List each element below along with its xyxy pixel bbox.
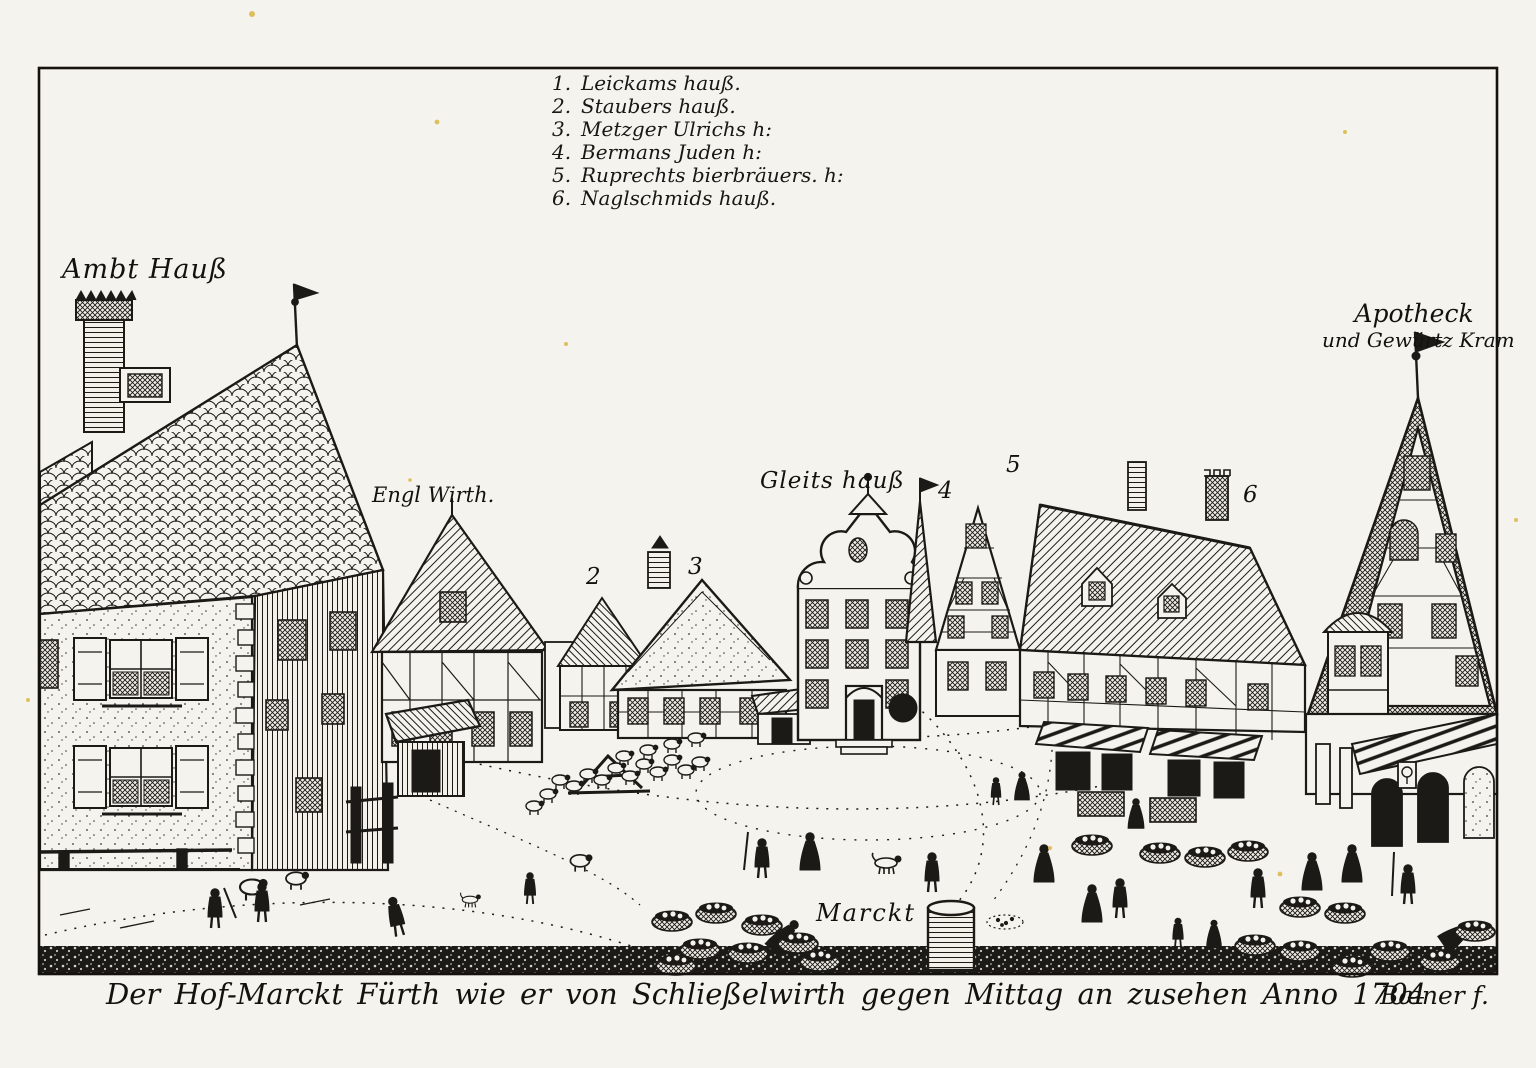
metzger-roof — [612, 580, 790, 690]
ambthaus-front-wall — [40, 597, 252, 870]
label-gleitshaus: Gleits hauß — [760, 468, 905, 494]
legend-item-number: 2. — [552, 95, 574, 118]
legend-item-label: Metzger Ulrichs h: — [581, 118, 772, 141]
marker-4: 4 — [938, 478, 953, 504]
legend-item-number: 5. — [552, 164, 574, 187]
legend-item-number: 1. — [552, 72, 574, 95]
ambthaus-chimney — [76, 291, 136, 432]
legend-row: 2. Staubers hauß. — [552, 95, 844, 118]
townsfolk-figures — [208, 772, 1480, 956]
marker-5: 5 — [1006, 452, 1021, 478]
title-caption: Der Hof-Marckt Fürth wie er von Schließe… — [106, 977, 1426, 1011]
label-englwirth: Engl Wirth. — [372, 483, 494, 507]
legend-item-label: Leickams hauß. — [581, 72, 741, 95]
label-apotheck-line2: und Gewürtz Kram — [1322, 327, 1506, 354]
ambthaus-window-lower — [74, 746, 208, 814]
gleitshaus-building — [798, 473, 920, 754]
label-ambthaus: Ambt Hauß — [62, 254, 228, 285]
marker-6: 6 — [1243, 482, 1258, 508]
legend-row: 6. Naglschmids hauß. — [552, 187, 844, 210]
legend-item-number: 4. — [552, 141, 574, 164]
shop-awnings — [1036, 722, 1262, 822]
legend-item-label: Staubers hauß. — [581, 95, 736, 118]
apotheck-building — [1306, 332, 1497, 846]
legend-item-number: 6. — [552, 187, 574, 210]
legend-row: 5. Ruprechts bierbräuers. h: — [552, 164, 844, 187]
ambthaus-window-upper — [74, 638, 208, 706]
englwirth-roof — [372, 515, 548, 652]
round-stone — [889, 694, 917, 722]
label-marckt: Marckt — [816, 899, 916, 927]
label-apotheck-line1: Apotheck — [1322, 300, 1506, 327]
legend-item-number: 3. — [552, 118, 574, 141]
ambthaus-building — [40, 284, 388, 870]
marker-3: 3 — [688, 554, 703, 580]
legend-row: 4. Bermans Juden h: — [552, 141, 844, 164]
marker-2: 2 — [586, 564, 601, 590]
label-apotheck: Apotheck und Gewürtz Kram — [1322, 300, 1506, 354]
engraving-print: 1. Leickams hauß. 2. Staubers hauß. 3. M… — [0, 0, 1536, 1068]
ruprechts-building — [1020, 462, 1305, 822]
metzger-building — [612, 536, 816, 744]
apotheck-oriel — [1324, 613, 1392, 714]
legend-house-key: 1. Leickams hauß. 2. Staubers hauß. 3. M… — [552, 72, 844, 210]
engraver-signature: Bæner f. — [1380, 981, 1489, 1010]
legend-item-label: Bermans Juden h: — [581, 141, 762, 164]
bermans-building — [906, 478, 1020, 716]
legend-item-label: Ruprechts bierbräuers. h: — [581, 164, 844, 187]
legend-row: 3. Metzger Ulrichs h: — [552, 118, 844, 141]
ambthaus-flag — [292, 284, 318, 348]
legend-item-label: Naglschmids hauß. — [581, 187, 776, 210]
legend-row: 1. Leickams hauß. — [552, 72, 844, 95]
spire-flag — [920, 478, 938, 492]
